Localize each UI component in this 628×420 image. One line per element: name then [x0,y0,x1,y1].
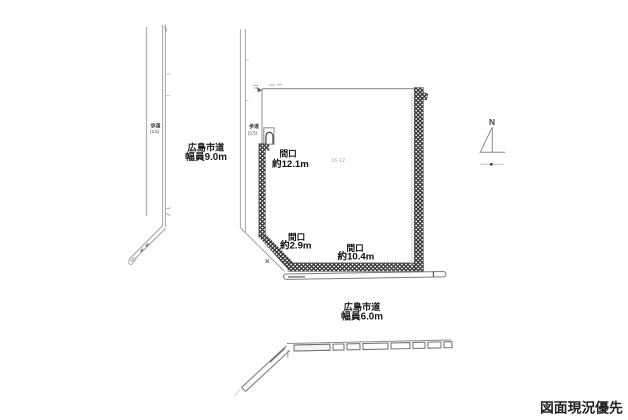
svg-text:16-12: 16-12 [331,158,345,164]
svg-text:広島市道: 広島市道 [344,301,382,312]
svg-text:(2.5): (2.5) [150,129,160,134]
svg-text:幅員9.0m: 幅員9.0m [185,150,227,163]
svg-text:N: N [489,117,495,127]
svg-text:間口: 間口 [280,149,297,159]
svg-text:約2.9m: 約2.9m [280,240,311,252]
svg-text:広島市道: 広島市道 [188,142,226,153]
svg-text:幅員6.0m: 幅員6.0m [341,310,383,323]
svg-text:約10.4m: 約10.4m [338,251,375,263]
svg-text:図面現況優先: 図面現況優先 [540,400,623,416]
svg-text:歩道: 歩道 [249,123,259,130]
svg-text:(2.5): (2.5) [248,130,258,135]
svg-text:約12.1m: 約12.1m [272,158,309,170]
